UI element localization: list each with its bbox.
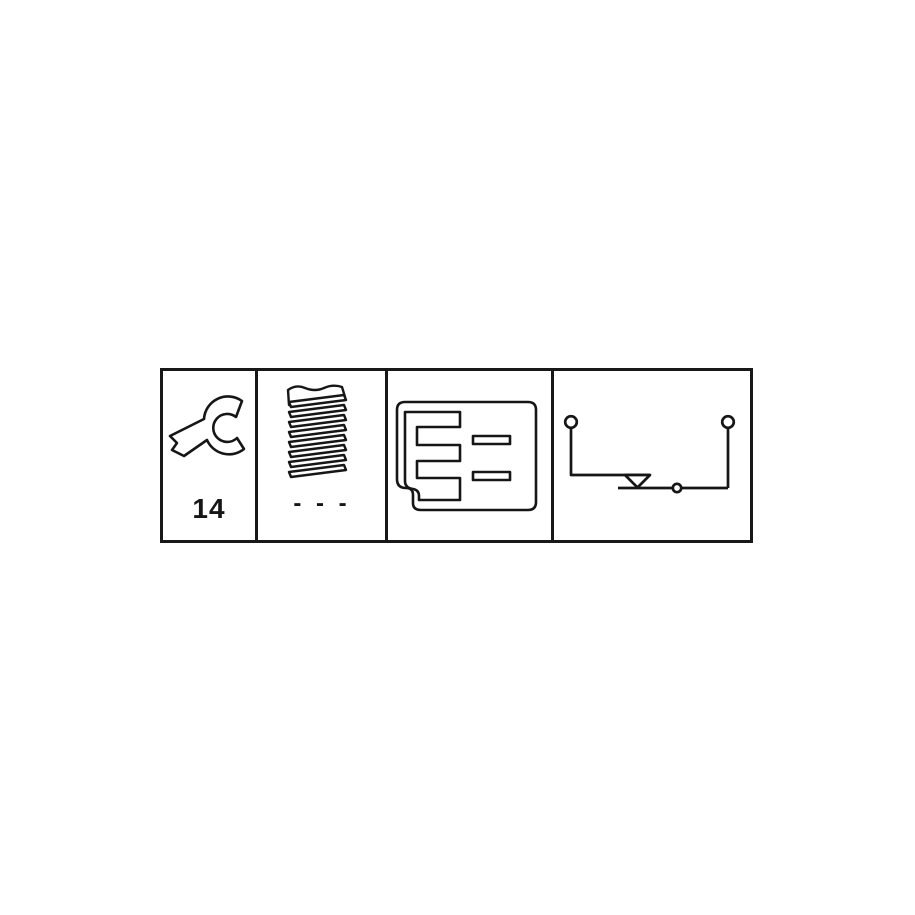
panel-wrench-size: 14 [163,371,255,540]
wrench-size-value: 14 [163,495,255,523]
spec-pictogram-strip: 14 - - - [160,368,753,543]
panel-connector-face [385,371,551,540]
panel-thread-size: - - - [255,371,385,540]
thread-size-value: - - - [258,492,385,516]
panel-switch-circuit [551,371,750,540]
switch-circuit-diagram-icon [554,371,750,540]
connector-plug-icon [388,371,551,540]
